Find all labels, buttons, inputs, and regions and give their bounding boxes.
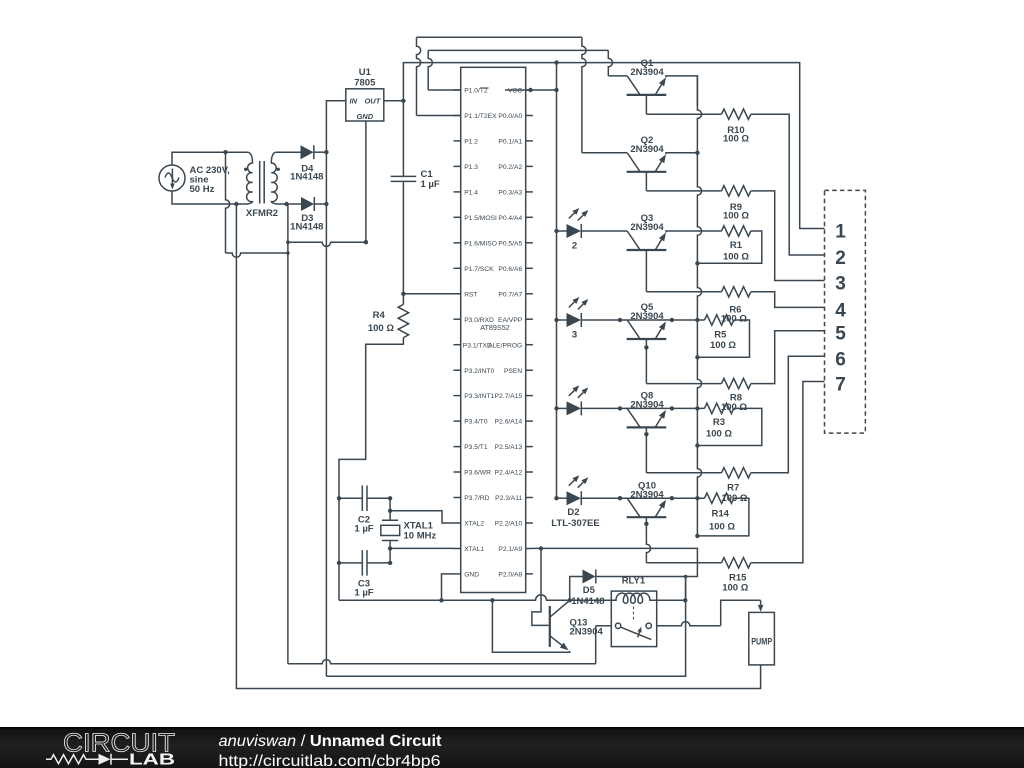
svg-text:2N3904: 2N3904: [630, 489, 664, 500]
svg-text:P2.2/A10: P2.2/A10: [495, 521, 523, 528]
svg-text:P2.0/A8: P2.0/A8: [498, 572, 522, 579]
svg-text:2: 2: [835, 248, 846, 269]
svg-text:P3.3/INT1: P3.3/INT1: [464, 393, 494, 400]
svg-text:2N3904: 2N3904: [630, 144, 664, 155]
svg-text:10 MHz: 10 MHz: [404, 531, 437, 542]
svg-text:7805: 7805: [354, 78, 376, 89]
svg-text:GND: GND: [356, 112, 373, 121]
svg-text:VCC: VCC: [508, 88, 522, 95]
svg-text:XFMR2: XFMR2: [246, 208, 278, 219]
svg-text:R3: R3: [713, 417, 725, 428]
svg-text:100 Ω: 100 Ω: [368, 323, 394, 334]
svg-text:2N3904: 2N3904: [630, 222, 664, 233]
svg-text:2N3904: 2N3904: [630, 67, 664, 78]
svg-text:P1.1/T2EX: P1.1/T2EX: [464, 113, 497, 120]
svg-text:P0.6/A6: P0.6/A6: [498, 266, 522, 273]
svg-text:6: 6: [835, 349, 846, 370]
svg-text:1 µF: 1 µF: [354, 587, 373, 598]
svg-text:RLY1: RLY1: [622, 576, 646, 587]
svg-text:P1.2: P1.2: [464, 139, 478, 146]
svg-text:RST: RST: [464, 291, 477, 298]
svg-text:R4: R4: [373, 310, 386, 321]
svg-text:P1.6/MISO: P1.6/MISO: [464, 240, 497, 247]
svg-text:P0.0/A0: P0.0/A0: [498, 113, 522, 120]
svg-text:3: 3: [835, 274, 846, 295]
svg-text:P1.5/MOSI: P1.5/MOSI: [464, 215, 497, 222]
svg-text:P3.4/T0: P3.4/T0: [464, 419, 488, 426]
svg-text:P1.7/SCK: P1.7/SCK: [464, 266, 494, 273]
svg-text:P1.0/T2: P1.0/T2: [464, 88, 488, 95]
svg-text:P2.7/A15: P2.7/A15: [495, 393, 523, 400]
svg-text:ALE/PROG: ALE/PROG: [488, 342, 522, 349]
svg-text:100 Ω: 100 Ω: [710, 340, 736, 351]
svg-text:1 µF: 1 µF: [421, 179, 440, 190]
svg-text:2: 2: [572, 241, 577, 252]
svg-text:R1: R1: [730, 240, 743, 251]
svg-text:IN: IN: [350, 96, 358, 105]
svg-text:U1: U1: [359, 67, 372, 78]
svg-text:1N4148: 1N4148: [290, 172, 323, 183]
svg-text:P3.7/RD: P3.7/RD: [464, 495, 489, 502]
svg-text:2N3904: 2N3904: [630, 400, 664, 411]
svg-text:P3.2/INT0: P3.2/INT0: [464, 368, 494, 375]
svg-text:P2.6/A14: P2.6/A14: [495, 419, 523, 426]
svg-text:P2.3/A11: P2.3/A11: [495, 495, 522, 502]
svg-text:R14: R14: [711, 509, 729, 520]
svg-text:1N4148: 1N4148: [571, 596, 604, 607]
svg-text:P0.4/A4: P0.4/A4: [498, 215, 522, 222]
svg-text:LTL-307EE: LTL-307EE: [551, 518, 599, 529]
svg-text:P2.1/A9: P2.1/A9: [498, 546, 522, 553]
svg-text:100 Ω: 100 Ω: [723, 252, 749, 263]
svg-text:1 µF: 1 µF: [354, 523, 373, 534]
svg-text:5: 5: [835, 324, 846, 345]
svg-text:D2: D2: [567, 507, 579, 518]
svg-text:P3.6/WR: P3.6/WR: [464, 470, 491, 477]
svg-text:PSEN: PSEN: [504, 368, 522, 375]
svg-text:50 Hz: 50 Hz: [190, 184, 215, 195]
svg-text:100 Ω: 100 Ω: [709, 521, 735, 532]
svg-text:P2.4/A12: P2.4/A12: [495, 470, 523, 477]
svg-text:P1.4: P1.4: [464, 189, 478, 196]
svg-text:PUMP: PUMP: [751, 636, 772, 646]
svg-text:P0.7/A7: P0.7/A7: [498, 291, 522, 298]
svg-text:XTAL1: XTAL1: [464, 546, 484, 553]
svg-text:P0.2/A2: P0.2/A2: [498, 164, 522, 171]
svg-text:P0.1/A1: P0.1/A1: [498, 139, 522, 146]
svg-text:XTAL2: XTAL2: [464, 521, 484, 528]
svg-text:3: 3: [572, 330, 577, 341]
svg-text:P3.5/T1: P3.5/T1: [464, 444, 488, 451]
svg-text:100 Ω: 100 Ω: [706, 429, 732, 440]
svg-text:P1.3: P1.3: [464, 164, 478, 171]
svg-text:1: 1: [835, 222, 846, 243]
svg-text:100 Ω: 100 Ω: [723, 210, 749, 221]
svg-text:4: 4: [835, 300, 846, 321]
svg-text:1N4148: 1N4148: [290, 222, 323, 233]
svg-text:2N3904: 2N3904: [570, 627, 604, 638]
svg-text:100 Ω: 100 Ω: [723, 134, 749, 145]
svg-text:http://circuitlab.com/cbr4bp6: http://circuitlab.com/cbr4bp6: [219, 753, 441, 768]
svg-text:R5: R5: [714, 329, 727, 340]
svg-text:P2.5/A13: P2.5/A13: [495, 444, 523, 451]
svg-text:7: 7: [835, 375, 846, 396]
svg-text:LAB: LAB: [129, 752, 175, 768]
svg-text:anuviswan / Unnamed Circuit: anuviswan / Unnamed Circuit: [219, 733, 443, 750]
svg-text:GND: GND: [464, 572, 479, 579]
svg-text:P0.5/A5: P0.5/A5: [498, 240, 522, 247]
svg-text:2N3904: 2N3904: [630, 311, 664, 322]
svg-text:P0.3/A3: P0.3/A3: [498, 189, 522, 196]
svg-text:OUT: OUT: [364, 96, 381, 105]
svg-text:100 Ω: 100 Ω: [722, 583, 748, 594]
svg-text:AT89S52: AT89S52: [480, 323, 509, 332]
svg-text:D5: D5: [583, 585, 596, 596]
